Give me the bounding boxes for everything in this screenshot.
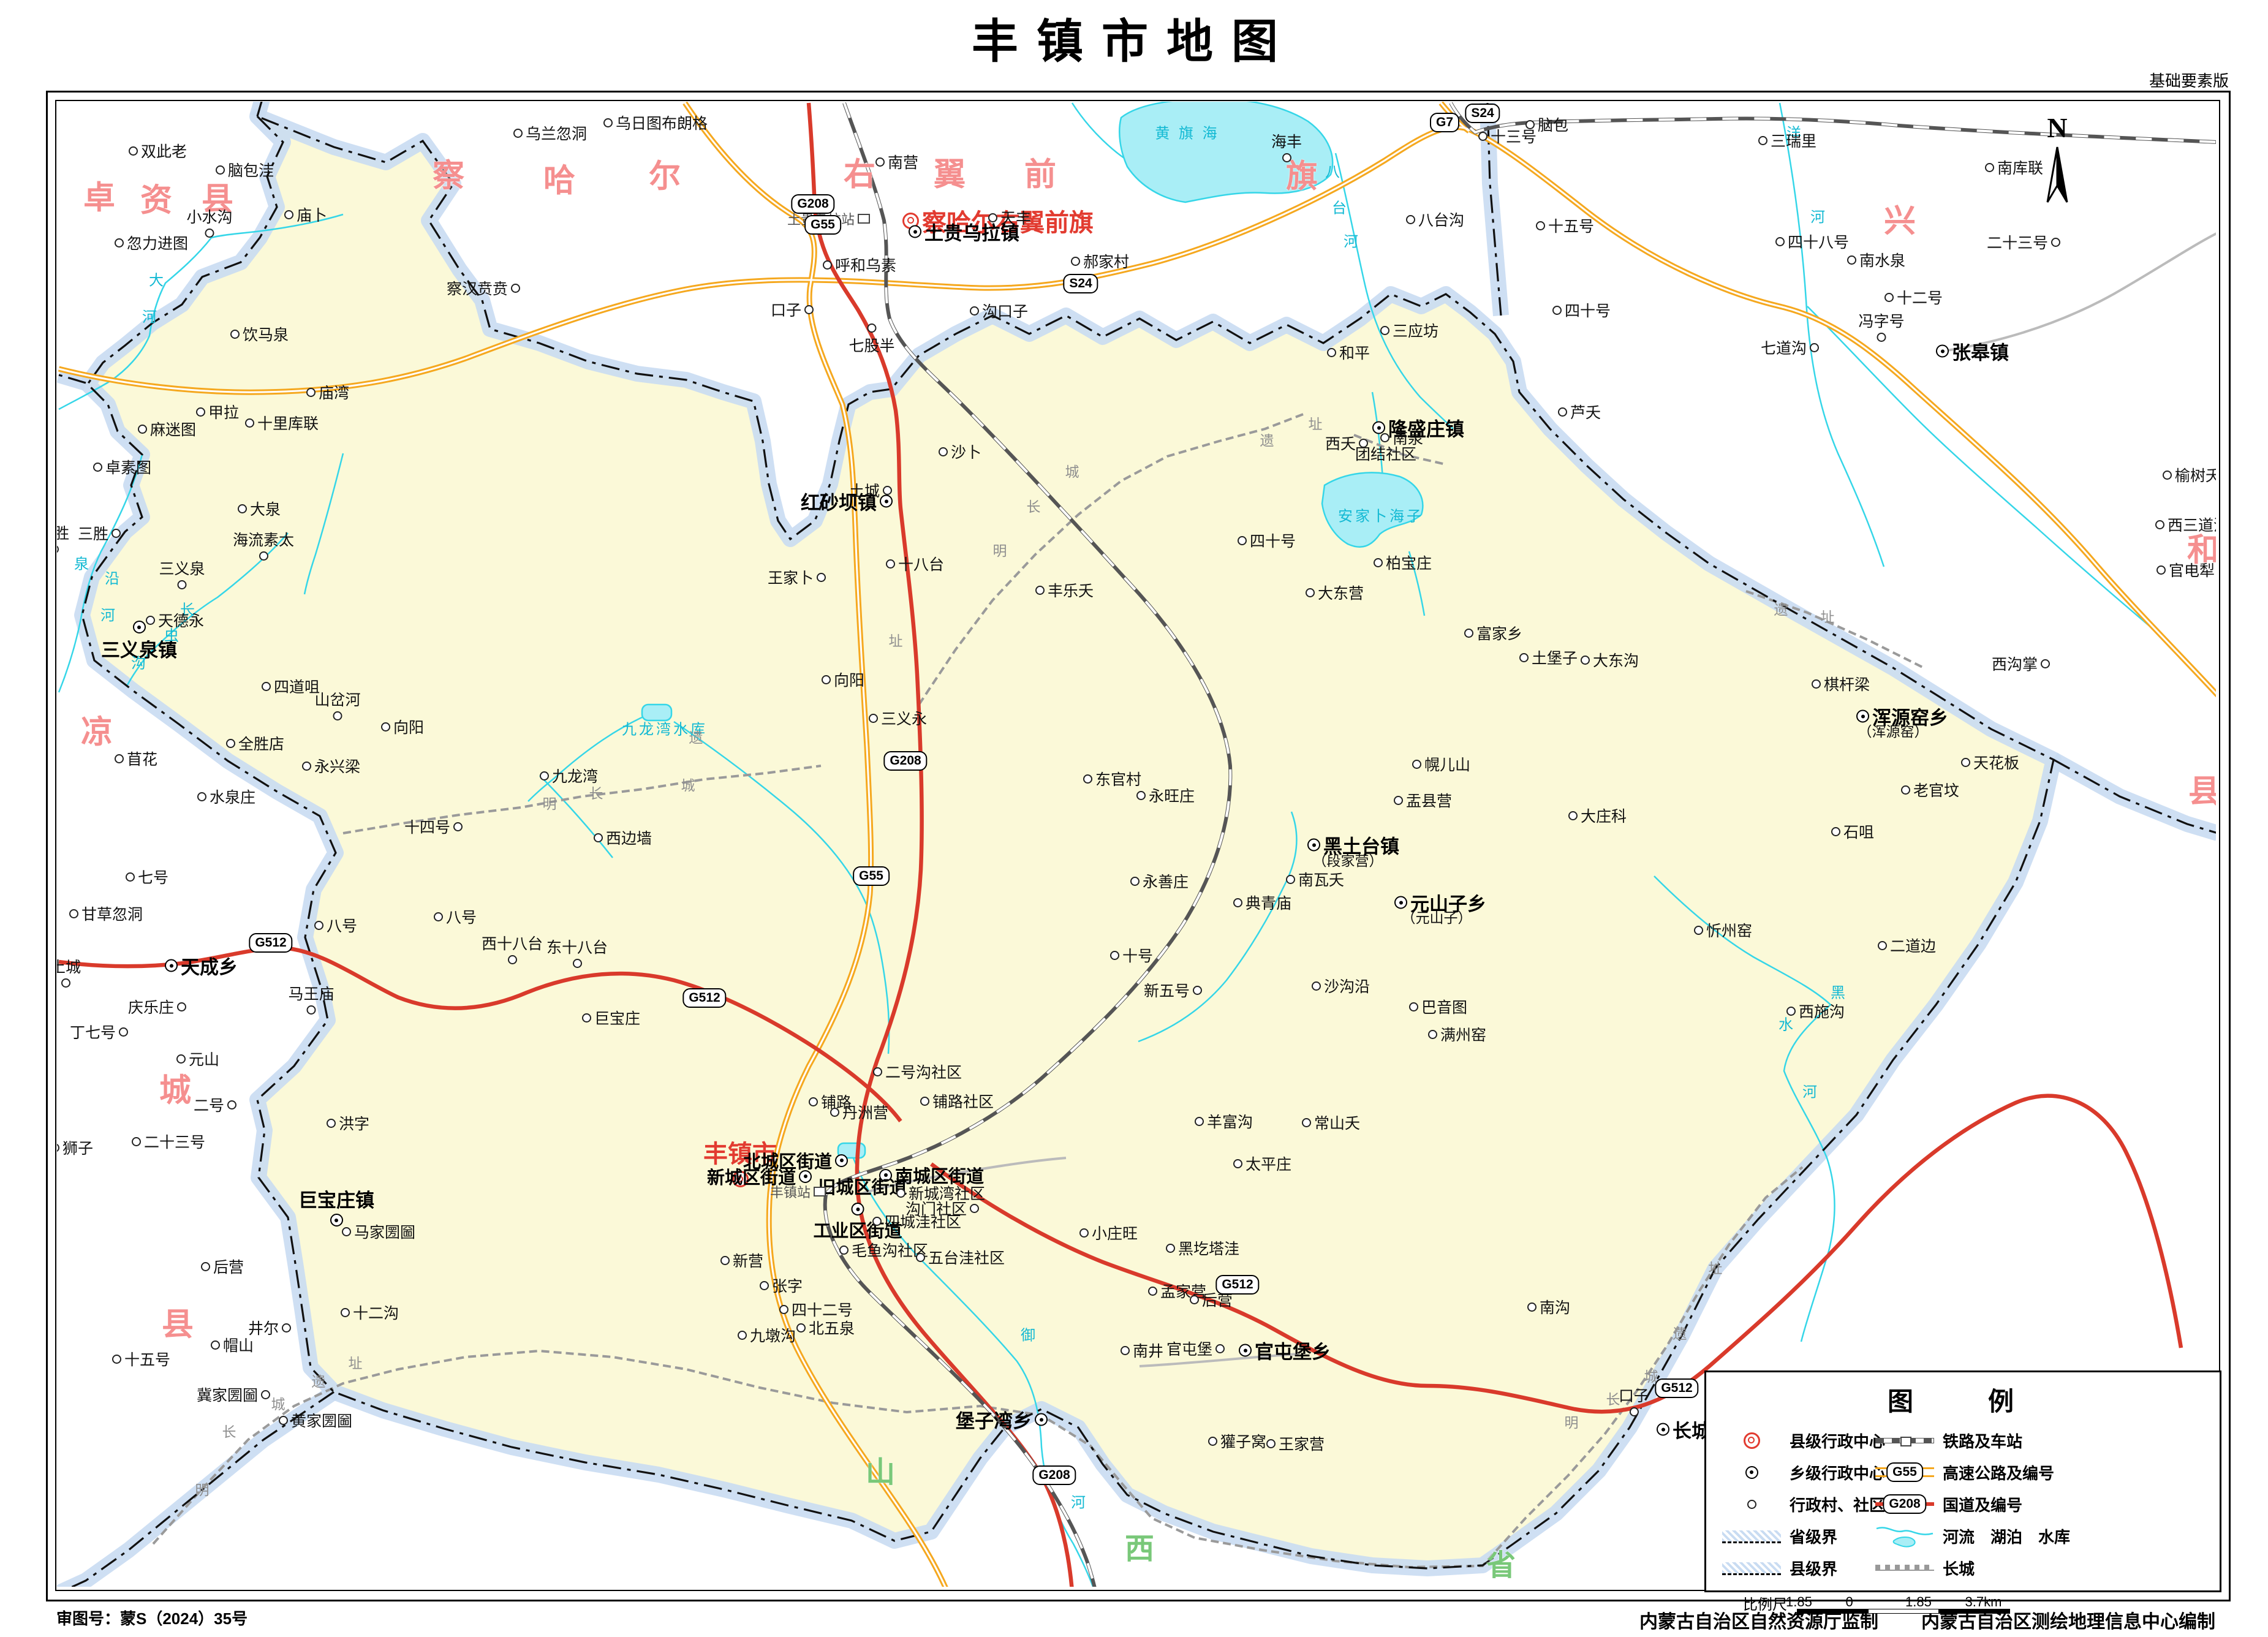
village-label: 马家圐圙 [342,1220,415,1242]
village-marker [1238,536,1247,545]
label-text: 二十三号 [144,1130,205,1152]
village-label: 满州窑 [1428,1023,1486,1045]
label-text: 遗 [312,1370,326,1391]
village-label: 十三号 [1478,125,1537,147]
label-text: 乌日图布朗格 [616,112,708,134]
label-text: 口子 [771,298,801,320]
village-label: 新营 [720,1249,763,1271]
label-text: 南瓦夭 [1298,868,1344,890]
village-label: 马王庙 [288,982,334,1015]
village-marker [146,616,155,625]
neighbor-county-label: 县 [2188,766,2216,812]
label-text: 新五号 [1144,979,1190,1001]
label-text: 明 [1565,1411,1579,1432]
village-marker [507,955,516,964]
village-label: 全胜店 [226,732,284,754]
village-marker [822,675,831,684]
village-marker [540,771,549,781]
village-label: 四十八号 [1775,230,1849,252]
label-text: 沙沟沿 [1324,975,1370,997]
village-marker [284,210,293,219]
village-label: 二十三号 [132,1130,205,1152]
province-label: 山 [866,1448,895,1491]
label-text: 海丰 [1271,130,1302,152]
village-marker [1847,255,1856,265]
label-text: 全胜店 [238,732,284,754]
legend-box: 图 例 县级行政中心铁路及车站乡级行政中心G55高速公路及编号行政村、社区G20… [1704,1370,2221,1592]
label-text: 大东沟 [1593,649,1639,671]
village-marker [138,425,147,434]
legend-left-column: 县级行政中心铁路及车站乡级行政中心G55高速公路及编号行政村、社区G208国道及… [1722,1424,2213,1584]
village-marker [205,229,214,238]
label-text: 长 [1027,495,1041,516]
village-label: 帽山 [211,1334,254,1356]
village-label: 口子 [771,298,814,320]
label-text: 河 [1071,1491,1088,1512]
village-marker [1380,433,1389,442]
label-text: 元山 [189,1048,219,1070]
water-label: 沿 [105,567,122,588]
village-marker [1758,136,1767,145]
village-marker [1884,293,1894,302]
village-label: 羊富沟 [1195,1110,1253,1132]
village-label: 典青庙 [1233,891,1291,913]
legend-symbol-nat: G208 [1875,1502,1934,1506]
village-label: 八号 [434,905,477,928]
greatwall-label: 明 [543,792,557,813]
village-marker [1266,1439,1276,1448]
road-shield: G208 [1032,1465,1076,1485]
village-marker [869,714,878,723]
village-marker [830,1108,839,1117]
neighbor-county-label: 尔 [649,151,681,197]
road-shield: G512 [682,988,726,1008]
village-marker [314,921,323,930]
label-text: 城 [159,1065,191,1111]
label-text: 遗 [1673,1322,1687,1343]
label-text: 河 [1344,230,1361,251]
village-marker [2041,659,2050,668]
water-label: 八 [1325,160,1342,181]
village-label: （段家营） [1313,849,1383,870]
label-text: 县 [162,1299,194,1345]
greatwall-label: 长 [222,1420,236,1441]
label-text: 三胜 [78,522,108,544]
village-marker [279,1416,288,1425]
village-marker [126,872,135,882]
road-shield: G208 [791,194,834,214]
village-marker [1286,875,1295,884]
village-marker [1428,1030,1437,1039]
village-label: 东十八台 [546,936,608,968]
village-marker [306,388,316,397]
township-marker [1239,1344,1252,1357]
label-text: 明 [543,792,557,813]
label-text: 八台沟 [1418,208,1464,230]
village-label: 南沟 [1527,1296,1570,1318]
village-marker [216,165,225,175]
neighbor-county-label: 资 [140,175,172,221]
legend-row: G55高速公路及编号 [1875,1456,2213,1488]
village-label: 王家营 [1266,1432,1325,1454]
legend-row: 长城 [1875,1552,2213,1584]
neighbor-county-label: 兴 [1884,195,1916,241]
label-text: 九墩沟 [750,1324,796,1346]
label-text: 榆树夭 [2175,464,2216,486]
village-label: 巨宝庄 [582,1007,640,1029]
village-marker [823,260,832,270]
label-text: 西 [1125,1524,1154,1567]
label-text: 巨宝庄镇 [298,1185,374,1212]
province-label: 西 [1125,1524,1154,1567]
village-marker [230,330,240,339]
village-marker [1312,981,1321,991]
village-label: 官电犁 [2156,559,2215,581]
village-marker [1110,951,1119,960]
village-label: 富家乡 [1464,622,1522,644]
label-text: 十四号 [404,815,450,837]
legend-symbol-vil [1722,1500,1781,1509]
label-text: 台 [1332,196,1349,217]
label-text: 典青庙 [1246,891,1291,913]
label-text: 东官村 [1095,768,1141,790]
label-text: 四道咀 [274,675,320,697]
village-label: 团结社区 [1355,442,1416,464]
township-marker [799,1170,812,1183]
village-label: 永旺庄 [1136,784,1195,806]
label-text: 四十号 [1250,529,1296,551]
village-marker [1302,1118,1311,1127]
village-marker [738,1331,747,1340]
station-label: 丰镇站 [770,1182,826,1201]
label-text: 二号 [194,1094,224,1116]
label-text: 永善庄 [1143,870,1189,892]
label-text: 省 [1486,1541,1516,1584]
village-marker [1380,326,1389,335]
village-marker [1215,1344,1225,1353]
village-label: 四道咀 [262,675,320,697]
village-label: 乌日图布朗格 [603,112,708,134]
label-text: 八 [1325,160,1342,181]
village-marker [594,833,603,842]
village-marker [1195,1117,1204,1126]
village-marker [61,978,70,988]
village-label: 土城 [849,479,892,501]
label-text: 口子 [1619,1384,1649,1406]
village-label: 黑圪塔洼 [1166,1237,1239,1259]
label-text: 铺路社区 [932,1090,994,1112]
village-label: 沟口子 [970,300,1028,322]
label-text: 大庄科 [1581,804,1627,826]
label-text: 水泉庄 [210,785,255,807]
label-text: 马家圐圙 [354,1220,415,1242]
label-text: 遗 [689,726,703,747]
label-text: 十五号 [124,1348,170,1370]
label-text: 土堡子 [1532,646,1578,668]
label-text: 址 [349,1352,363,1372]
village-marker [1985,163,1994,172]
village-label: 麻迷图 [138,418,196,440]
village-label: 卓素图 [93,456,151,478]
greatwall-label: 遗 [312,1370,326,1391]
village-marker [1079,1228,1089,1238]
label-text: 富家乡 [1476,622,1522,644]
village-marker [1208,1437,1217,1446]
label-text: 幌儿山 [1424,753,1470,775]
village-label: 狮子 [57,1136,93,1159]
village-label: 三应坊 [1380,319,1438,341]
greatwall-label: 遗 [1260,429,1274,450]
label-text: 三瑞里 [1771,129,1816,151]
label-text: 盂县营 [1406,789,1452,811]
label-text: 帽山 [223,1334,254,1356]
village-label: 向阳 [822,668,864,690]
greatwall-label: 遗 [1774,598,1788,619]
village-marker [112,1355,121,1364]
map-page: 丰镇市地图 基础要素版 [0,0,2268,1637]
village-marker [282,1323,291,1333]
village-label: 二号 [194,1094,236,1116]
village-marker [262,682,271,691]
label-text: 三应坊 [1393,319,1438,341]
village-label: 丰乐夭 [1035,579,1094,601]
village-label: 山岔河 [314,688,360,720]
village-marker [93,463,102,472]
village-label: 十八台 [886,553,944,575]
label-text: 河 [1810,205,1828,227]
label-text: 尔 [649,151,681,197]
village-label: 巴音图 [1409,996,1467,1018]
village-label: 盂县营 [1394,789,1452,811]
approval-number: 审图号：蒙S（2024）35号 [56,1606,248,1629]
village-label: 三瑞里 [1758,129,1816,151]
village-marker [342,1227,351,1236]
legend-row: 县级界 [1722,1552,1875,1584]
neighbor-county-label: 前 [1024,149,1056,195]
village-marker [381,722,390,732]
village-marker [1193,986,1202,995]
village-marker [2163,471,2172,480]
label-text: 西边墙 [606,826,652,849]
label-text: 西施沟 [1799,1000,1845,1022]
village-label: 西三道沟 [2155,513,2216,535]
station-icon [814,1187,826,1197]
neighbor-county-label: 察 [433,150,464,196]
village-label: 大泉 [238,497,281,520]
village-label: 丁七号 [70,1021,128,1043]
label-text: 满州窑 [1440,1023,1486,1045]
village-marker [988,213,997,222]
label-text: 址 [1309,412,1323,433]
village-label: 庆乐庄 [128,996,186,1018]
village-label: 小庄旺 [1079,1222,1138,1244]
village-marker [132,1137,141,1146]
village-label: 小水沟 [186,205,232,238]
village-marker [1166,1244,1175,1253]
label-text: 海流素太 [233,528,294,550]
village-label: 幌儿山 [1412,753,1470,775]
water-label: 台 [1332,196,1349,217]
village-marker [115,754,124,763]
village-label: 八台沟 [1406,208,1464,230]
legend-symbol-cnty [1722,1562,1781,1573]
neighbor-county-label: 城 [159,1065,191,1111]
label-text: 城 [1065,460,1079,481]
village-marker [112,529,121,538]
label-text: 七股半 [849,334,894,356]
label-text: 苜花 [127,747,157,769]
village-label: 二十三号 [1987,231,2060,253]
village-label: 七道沟 [1761,336,1819,358]
village-marker [1136,791,1146,800]
village-label: 甲拉 [196,401,239,423]
village-marker [57,545,58,554]
village-marker [1831,827,1840,836]
legend-scale: 比例尺 1.8501.853.7km [1743,1592,2220,1615]
village-label: 西沟掌 [1992,652,2050,675]
label-text: 泉 [74,552,91,573]
label-text: 庆乐庄 [128,996,174,1018]
label-text: 黄家圐圙 [291,1409,352,1431]
village-label: 西边墙 [594,826,652,849]
label-text: 天丰 [1000,206,1031,229]
label-text: 脑包 [1538,113,1568,135]
label-text: 饮马泉 [243,323,289,345]
water-label: 河 [1810,205,1828,227]
village-marker [1901,785,1910,795]
village-marker [872,1217,882,1226]
label-text: 明 [195,1478,210,1499]
village-marker [779,1305,788,1314]
village-label: 四城洼社区 [872,1210,961,1232]
label-text: 二十三号 [1987,231,2048,253]
village-label: 芦夭 [1558,401,1601,423]
township-marker [835,1154,848,1167]
neighbor-county-label: 右 [844,149,875,195]
village-marker [226,739,235,748]
village-label: 毛鱼沟社区 [839,1239,928,1261]
label-text: 南沟 [1540,1296,1570,1318]
edition-tag: 基础要素版 [2149,69,2229,91]
label-text: 右 [844,149,875,195]
greatwall-label: 址 [1821,605,1835,626]
village-label: 洪字 [327,1112,369,1134]
label-text: 堡子湾乡 [956,1406,1032,1434]
village-label: 十二沟 [341,1301,399,1323]
village-marker [582,1013,591,1023]
village-label: 三胜 [78,522,121,544]
village-marker [603,118,613,127]
village-marker [69,909,78,918]
village-label: 乌兰忽洞 [513,122,587,144]
label-text: 十八台 [898,553,944,575]
village-marker [1233,898,1242,907]
village-label: 南井 [1121,1339,1163,1361]
label-text: 五台洼社区 [928,1246,1005,1268]
label-text: 十二号 [1897,286,1943,308]
label-text: 脑包洼 [228,159,274,181]
township-marker [909,225,921,238]
village-marker [1558,407,1567,417]
village-marker [1775,237,1785,246]
legend-symbol-rail [1875,1438,1934,1443]
village-marker [245,418,254,428]
village-label: 棋杆梁 [1812,673,1870,695]
village-marker [1536,221,1545,230]
greatwall-label: 明 [993,539,1007,560]
water-label: 河 [142,305,159,327]
legend-row: 省级界 [1722,1520,1875,1552]
village-label: 二号沟社区 [873,1060,962,1083]
label-text: 四十八号 [1788,230,1849,252]
village-marker [1629,1407,1638,1416]
label-text: 察汉贲贲 [447,277,508,299]
label-text: 凉 [81,706,113,752]
village-label: 和平 [1327,341,1370,363]
label-text: 西夭 [1325,432,1356,454]
village-marker [572,959,581,968]
village-label: 东胜 [57,521,69,554]
road-shield: G7 [1430,113,1459,132]
village-label: 庙卜 [284,203,327,225]
village-marker [201,1262,210,1271]
label-text: 四城洼社区 [885,1210,961,1232]
village-marker [197,792,206,801]
village-label: 冀家圐圙 [197,1383,270,1405]
road-shield: G208 [883,751,927,771]
village-label: 北五泉 [796,1317,855,1339]
label-text: 东胜 [57,521,69,543]
label-text: 卓素图 [105,456,151,478]
label-text: 沟口子 [982,300,1028,322]
label-text: 御 [1021,1323,1038,1345]
township-marker [851,1203,864,1215]
village-label: （浑源窑） [1858,720,1929,741]
village-label: 五台洼社区 [916,1246,1005,1268]
label-text: 王家营 [1279,1432,1325,1454]
label-text: 兴 [1884,195,1916,241]
village-marker [513,129,523,138]
village-marker [1121,1346,1130,1355]
village-label: 九龙湾 [540,765,598,787]
label-text: 十五号 [1548,214,1594,236]
legend-row: 铁路及车站 [1875,1424,2213,1456]
label-text: 县 [2188,766,2216,812]
label-text: 哈 [543,155,575,201]
legend-row: 乡级行政中心 [1722,1456,1875,1488]
compass-letter: N [2033,112,2082,144]
label-text: 丹洲营 [842,1101,888,1123]
label-text: 丁七号 [70,1021,116,1043]
village-label: 铺路社区 [920,1090,994,1112]
village-marker [970,306,979,316]
village-marker [176,1054,186,1064]
greatwall-label: 明 [1565,1411,1579,1432]
legend-row: 行政村、社区 [1722,1488,1875,1520]
village-marker [920,1097,929,1106]
label-text: 郝家村 [1083,250,1129,272]
label-text: 八号 [327,914,357,936]
road-shield: G512 [1215,1275,1259,1295]
label-text: 柏宝庄 [1386,551,1432,573]
label-text: 址 [1709,1257,1723,1277]
label-text: 和平 [1339,341,1370,363]
greatwall-label: 明 [195,1478,210,1499]
village-marker [1282,153,1291,162]
village-label: 忽力进图 [115,232,188,254]
legend-symbol-cap [1722,1432,1781,1449]
village-label: 呼和乌素 [823,254,896,276]
